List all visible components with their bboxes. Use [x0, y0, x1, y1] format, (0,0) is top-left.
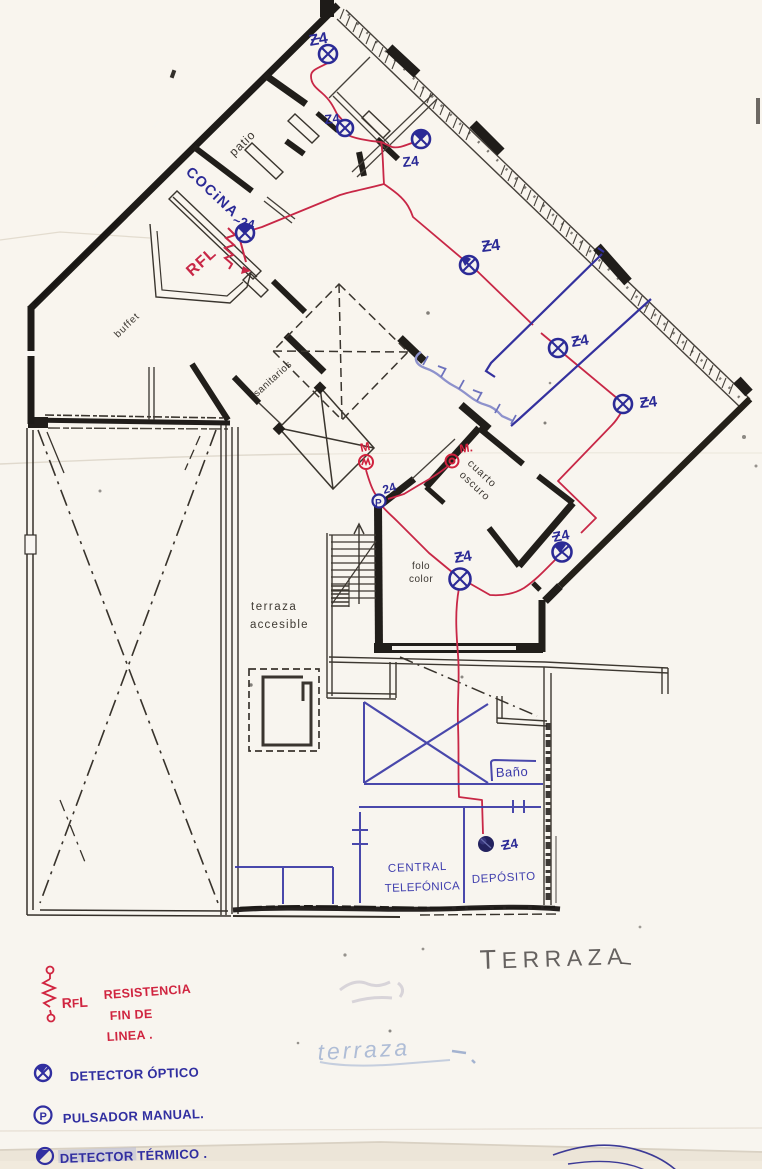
svg-text:Z4: Z4	[324, 110, 341, 127]
svg-text:TELEFÓNICA: TELEFÓNICA	[385, 879, 461, 895]
svg-text:terraza: terraza	[317, 1034, 411, 1065]
svg-text:Z4: Z4	[308, 30, 329, 50]
svg-text:RFL: RFL	[61, 994, 88, 1011]
svg-text:Z4: Z4	[552, 526, 571, 545]
svg-text:LINEA .: LINEA .	[106, 1028, 153, 1044]
svg-text:CENTRAL: CENTRAL	[388, 861, 448, 875]
svg-text:terraza: terraza	[251, 601, 297, 613]
svg-text:accesible: accesible	[250, 619, 309, 631]
svg-text:Z4: Z4	[501, 836, 519, 853]
svg-text:M.: M.	[458, 440, 473, 456]
svg-text:P: P	[40, 1111, 47, 1123]
svg-text:Baño: Baño	[496, 764, 529, 780]
svg-text:color: color	[409, 574, 433, 585]
svg-text:folo: folo	[412, 561, 430, 572]
svg-text:P: P	[375, 498, 382, 509]
svg-text:Z4: Z4	[402, 152, 420, 170]
svg-text:FIN DE: FIN DE	[109, 1007, 152, 1023]
